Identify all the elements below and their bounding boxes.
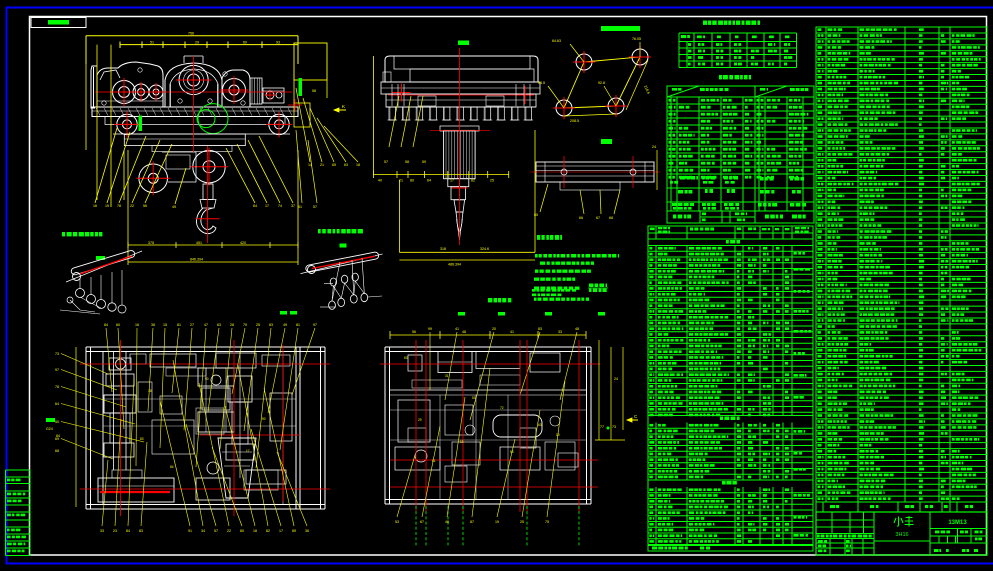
svg-text:81: 81 xyxy=(432,459,436,463)
svg-text:51: 51 xyxy=(150,41,154,45)
svg-text:17: 17 xyxy=(265,204,269,208)
svg-text:97: 97 xyxy=(55,368,59,372)
svg-text:24: 24 xyxy=(614,377,618,381)
svg-text:17: 17 xyxy=(450,179,454,183)
svg-text:82: 82 xyxy=(266,529,270,533)
svg-text:60: 60 xyxy=(243,41,247,45)
svg-text:15: 15 xyxy=(460,440,464,444)
svg-text:18: 18 xyxy=(356,163,360,167)
svg-text:83: 83 xyxy=(538,327,542,331)
svg-text:83: 83 xyxy=(269,323,273,327)
svg-text:68: 68 xyxy=(55,449,59,453)
svg-text:93: 93 xyxy=(276,41,280,45)
svg-text:57: 57 xyxy=(214,529,218,533)
svg-text:38: 38 xyxy=(151,323,155,327)
svg-text:33: 33 xyxy=(558,330,562,334)
svg-text:53: 53 xyxy=(472,396,476,400)
svg-text:83: 83 xyxy=(140,437,144,441)
svg-text:19: 19 xyxy=(105,204,109,208)
svg-text:99: 99 xyxy=(428,327,432,331)
svg-text:66: 66 xyxy=(579,216,583,220)
svg-text:64: 64 xyxy=(427,179,431,183)
svg-text:51: 51 xyxy=(298,205,302,209)
svg-text:22: 22 xyxy=(130,204,134,208)
svg-text:49: 49 xyxy=(172,205,176,209)
svg-text:18: 18 xyxy=(253,529,257,533)
svg-text:92.8: 92.8 xyxy=(598,81,605,85)
svg-text:451: 451 xyxy=(196,241,202,245)
svg-text:38: 38 xyxy=(148,389,152,393)
svg-text:23: 23 xyxy=(113,529,117,533)
svg-text:81: 81 xyxy=(177,323,181,327)
svg-text:846.394: 846.394 xyxy=(190,258,203,262)
svg-text:82: 82 xyxy=(471,179,475,183)
svg-text:37: 37 xyxy=(291,204,295,208)
svg-text:63: 63 xyxy=(217,323,221,327)
svg-text:80: 80 xyxy=(240,529,244,533)
svg-text:22: 22 xyxy=(227,529,231,533)
svg-text:74: 74 xyxy=(278,204,282,208)
svg-text:16: 16 xyxy=(93,204,97,208)
svg-text:83: 83 xyxy=(139,529,143,533)
svg-text:90: 90 xyxy=(262,417,266,421)
svg-text:79: 79 xyxy=(243,323,247,327)
svg-text:41: 41 xyxy=(510,330,514,334)
svg-text:19: 19 xyxy=(556,433,560,437)
svg-text:420: 420 xyxy=(240,241,246,245)
svg-text:41: 41 xyxy=(455,327,459,331)
svg-text:56: 56 xyxy=(143,204,147,208)
svg-text:13M13: 13M13 xyxy=(948,520,967,526)
svg-text:65: 65 xyxy=(332,163,336,167)
svg-text:90: 90 xyxy=(205,377,209,381)
svg-text:17: 17 xyxy=(246,449,250,453)
svg-text:75: 75 xyxy=(545,520,549,524)
svg-text:84: 84 xyxy=(56,434,60,438)
svg-text:91: 91 xyxy=(188,529,192,533)
svg-text:19: 19 xyxy=(495,520,499,524)
svg-text:29: 29 xyxy=(195,41,199,45)
svg-text:73: 73 xyxy=(55,352,59,356)
svg-text:84: 84 xyxy=(126,529,130,533)
svg-text:3H16: 3H16 xyxy=(895,532,908,538)
svg-text:486.394: 486.394 xyxy=(448,263,461,267)
svg-text:84: 84 xyxy=(104,323,108,327)
svg-text:57: 57 xyxy=(313,205,317,209)
svg-text:21: 21 xyxy=(320,163,324,167)
svg-text:81: 81 xyxy=(296,323,300,327)
svg-text:78: 78 xyxy=(55,385,59,389)
svg-text:64.63: 64.63 xyxy=(552,39,561,43)
svg-text:60: 60 xyxy=(116,323,120,327)
svg-text:48: 48 xyxy=(462,330,466,334)
svg-text:375: 375 xyxy=(148,241,154,245)
svg-text:17: 17 xyxy=(279,529,283,533)
svg-text:63: 63 xyxy=(404,356,408,360)
svg-text:78: 78 xyxy=(117,204,121,208)
svg-text:53: 53 xyxy=(395,520,399,524)
svg-text:58: 58 xyxy=(405,160,409,164)
svg-text:40: 40 xyxy=(378,179,382,183)
svg-text:84: 84 xyxy=(253,204,257,208)
svg-text:57: 57 xyxy=(384,160,388,164)
svg-text:89: 89 xyxy=(292,529,296,533)
svg-text:67: 67 xyxy=(420,520,424,524)
svg-text:324.6: 324.6 xyxy=(480,247,489,251)
svg-text:63: 63 xyxy=(344,163,348,167)
svg-text:318: 318 xyxy=(440,247,446,251)
svg-text:95: 95 xyxy=(510,450,514,454)
svg-text:68: 68 xyxy=(609,216,613,220)
svg-text:47: 47 xyxy=(204,323,208,327)
svg-text:28: 28 xyxy=(230,323,234,327)
svg-text:49: 49 xyxy=(283,323,287,327)
svg-text:59: 59 xyxy=(422,160,426,164)
svg-text:756: 756 xyxy=(188,32,194,36)
svg-text:25: 25 xyxy=(520,520,524,524)
svg-text:25: 25 xyxy=(256,323,260,327)
svg-text:208.5: 208.5 xyxy=(570,119,579,123)
svg-text:56: 56 xyxy=(412,330,416,334)
svg-text:24: 24 xyxy=(652,145,656,149)
svg-text:63: 63 xyxy=(538,423,542,427)
svg-text:25: 25 xyxy=(490,179,494,183)
svg-text:50: 50 xyxy=(55,420,59,424)
svg-text:84: 84 xyxy=(170,465,174,469)
svg-text:73: 73 xyxy=(612,425,616,429)
svg-text:67: 67 xyxy=(596,216,600,220)
svg-text:76.05: 76.05 xyxy=(632,37,641,41)
svg-text:K: K xyxy=(342,104,345,109)
svg-text:20: 20 xyxy=(492,327,496,331)
svg-text:87: 87 xyxy=(470,520,474,524)
svg-text:48: 48 xyxy=(575,327,579,331)
svg-text:34: 34 xyxy=(201,529,205,533)
svg-text:77: 77 xyxy=(600,425,604,429)
svg-text:72: 72 xyxy=(500,406,504,410)
svg-text:97: 97 xyxy=(313,323,317,327)
svg-text:46: 46 xyxy=(445,520,449,524)
svg-text:27: 27 xyxy=(190,323,194,327)
svg-text:36: 36 xyxy=(305,529,309,533)
svg-text:58: 58 xyxy=(312,89,316,93)
svg-text:65: 65 xyxy=(534,213,538,217)
svg-text:64: 64 xyxy=(55,402,59,406)
svg-text:64.5: 64.5 xyxy=(538,81,545,85)
svg-text:33: 33 xyxy=(100,529,104,533)
svg-text:31: 31 xyxy=(445,374,449,378)
svg-text:G24: G24 xyxy=(46,427,53,431)
svg-text:16: 16 xyxy=(135,323,139,327)
svg-text:80: 80 xyxy=(410,179,414,183)
svg-text:29: 29 xyxy=(418,418,422,422)
svg-text:15: 15 xyxy=(163,323,167,327)
